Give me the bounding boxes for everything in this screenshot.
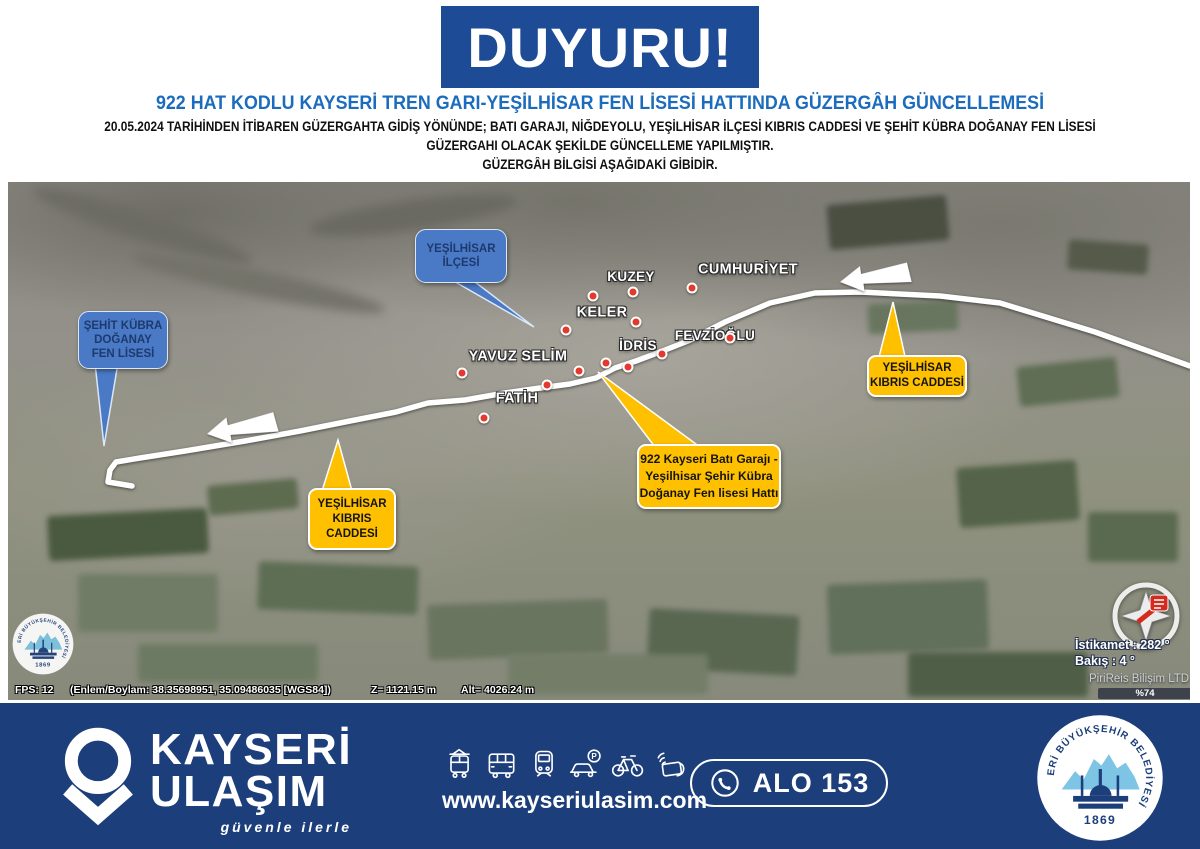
callout-tail — [450, 279, 534, 327]
status-latlon: (Enlem/Boylam: 38.35698951, 35.09486035 … — [70, 684, 331, 696]
callout-kibris-caddesi-left: YEŞİLHİSAR KIBRIS CADDESİ — [308, 488, 396, 550]
announcement-headline: 922 HAT KODLU KAYSERİ TREN GARI-YEŞİLHİS… — [36, 93, 1164, 115]
bus-stop-dot — [631, 317, 642, 328]
footer: KAYSERİ ULAŞIM güvenle ilerle P — [0, 703, 1200, 849]
callout-tail — [322, 440, 352, 491]
bus-stop-dot — [457, 368, 468, 379]
svg-text:P: P — [591, 752, 597, 761]
bus-stop-dot — [657, 349, 668, 360]
map-label-cumhuriyet: CUMHURİYET — [698, 261, 798, 278]
callout-yesilhisar-ilcesi: YEŞİLHİSAR İLÇESİ — [415, 229, 507, 283]
bus-stop-dot — [628, 287, 639, 298]
tram-icon — [442, 747, 478, 783]
status-alt: Alt= 4026.24 m — [461, 684, 534, 696]
callout-tail — [598, 372, 700, 447]
callout-kibris-caddesi-right: YEŞİLHİSAR KIBRIS CADDESİ — [867, 355, 967, 397]
announcement-line-1: 20.05.2024 TARİHİNDEN İTİBAREN GÜZERGAHT… — [72, 119, 1128, 134]
callout-tail — [878, 302, 906, 361]
brand-slogan: güvenle ilerle — [150, 819, 352, 835]
announcement-line-2: GÜZERGAHI OLACAK ŞEKİLDE GÜNCELLEME YAPI… — [72, 138, 1128, 153]
callout-route-922: 922 Kayseri Batı Garajı - Yeşilhisar Şeh… — [637, 444, 781, 509]
compass-view: Bakış : 4 ° — [1075, 654, 1135, 668]
alo-153-label: ALO 153 — [753, 768, 870, 799]
kayseri-ulasim-logo — [52, 723, 144, 831]
status-fps: FPS: 12 — [15, 684, 54, 696]
banner-title: DUYURU! — [467, 15, 732, 80]
bus-stop-dot — [479, 413, 490, 424]
map-label-keler: KELER — [577, 304, 628, 321]
municipality-seal-watermark: KAYSERİ BÜYÜKŞEHİR BELEDİYESİ 1869 — [12, 613, 74, 675]
map-label-idris: İDRİS — [619, 337, 657, 353]
website-url: www.kayseriulasim.com — [442, 787, 680, 814]
route-overlay — [8, 182, 1190, 700]
bus-stop-dot — [588, 291, 599, 302]
alo-153-badge: ALO 153 — [690, 759, 888, 807]
status-z: Z= 1121.15 m — [371, 684, 436, 696]
map-label-kuzey: KUZEY — [607, 268, 654, 284]
brand-line-2: ULAŞIM — [150, 771, 352, 813]
bus-stop-dot — [725, 333, 736, 344]
map-label-fatih: FATİH — [496, 390, 538, 407]
bus-stop-dot — [601, 358, 612, 369]
svg-text:1869: 1869 — [35, 662, 51, 668]
map-label-yavuzselim: YAVUZ SELİM — [469, 348, 568, 365]
bus-icon — [484, 747, 520, 783]
compass-heading: İstikamet : 282 ° — [1075, 638, 1170, 652]
metro-icon — [526, 747, 562, 783]
brand-block: KAYSERİ ULAŞIM güvenle ilerle — [150, 729, 352, 835]
announcement-line-3: GÜZERGÂH BİLGİSİ AŞAĞIDAKİ GİBİDİR. — [72, 157, 1128, 172]
callout-tail — [95, 363, 118, 446]
brand-line-1: KAYSERİ — [150, 729, 352, 771]
bus-stop-dot — [574, 366, 585, 377]
phone-icon — [709, 767, 741, 799]
bus-stop-dot — [561, 325, 572, 336]
svg-text:1869: 1869 — [1084, 813, 1116, 827]
bus-stop-dot — [687, 283, 698, 294]
map-label-fevzioglu: FEVZİOĞLU — [675, 327, 755, 343]
vendor-credit: PiriReis Bilişim LTD — [1089, 673, 1189, 685]
transport-icons: P — [442, 747, 688, 783]
announcement-banner: DUYURU! — [441, 6, 759, 88]
bus-stop-dot — [542, 380, 553, 391]
satellite-map: KUZEY CUMHURİYET KELER FEVZİOĞLU İDRİS Y… — [8, 182, 1190, 700]
callout-sehit-kubra-fen-lisesi: ŞEHİT KÜBRA DOĞANAY FEN LİSESİ — [78, 311, 168, 369]
municipality-seal: KAYSERİ BÜYÜKŞEHİR BELEDİYESİ 1869 — [1036, 714, 1164, 842]
bicycle-icon — [610, 747, 646, 783]
contactless-card-icon — [652, 747, 688, 783]
loading-percent: %74 — [1098, 688, 1190, 699]
car-parking-icon: P — [568, 747, 604, 783]
bus-stop-dot — [623, 362, 634, 373]
